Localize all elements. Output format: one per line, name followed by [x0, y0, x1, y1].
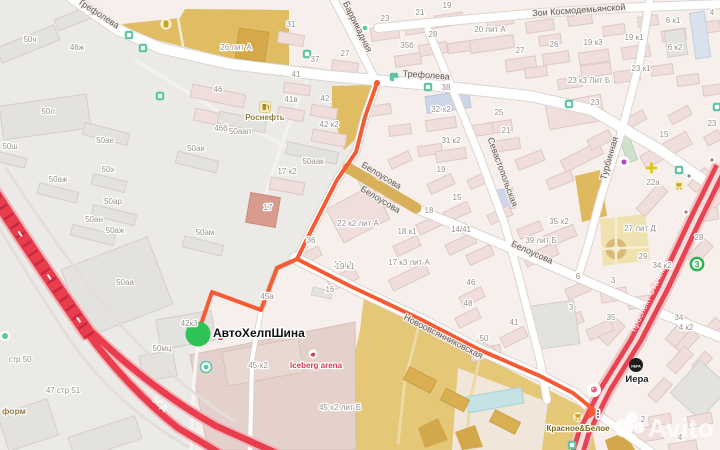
svg-text:25: 25: [495, 108, 504, 117]
svg-text:15: 15: [660, 130, 669, 139]
svg-text:17 к3 лит А: 17 к3 лит А: [388, 258, 430, 267]
svg-text:19 к1: 19 к1: [335, 262, 355, 271]
svg-text:45а: 45а: [260, 292, 274, 301]
svg-text:23: 23: [708, 119, 717, 128]
svg-text:50ан: 50ан: [85, 215, 103, 224]
svg-text:6 к2: 6 к2: [668, 43, 683, 52]
svg-text:32 х2: 32 х2: [431, 105, 451, 114]
svg-text:50аж: 50аж: [49, 175, 68, 184]
svg-text:31: 31: [287, 20, 296, 29]
svg-text:26: 26: [550, 40, 559, 49]
svg-text:22а: 22а: [646, 178, 660, 187]
svg-text:50ч: 50ч: [23, 35, 36, 44]
svg-text:42к3: 42к3: [181, 319, 198, 328]
svg-text:21: 21: [416, 8, 425, 17]
svg-text:41: 41: [292, 70, 301, 79]
svg-text:39 лит Б: 39 лит Б: [525, 236, 556, 245]
svg-text:2: 2: [641, 415, 646, 424]
svg-text:20 лит А: 20 лит А: [474, 25, 506, 34]
svg-text:22 к2 лит А: 22 к2 лит А: [337, 219, 379, 228]
svg-text:50ае: 50ае: [96, 136, 114, 145]
svg-text:16: 16: [326, 285, 335, 294]
svg-text:23: 23: [591, 98, 600, 107]
svg-text:Роснефть: Роснефть: [245, 113, 284, 122]
svg-text:50: 50: [480, 334, 489, 343]
svg-text:50аж: 50аж: [106, 226, 125, 235]
svg-text:АвтоХелпШина: АвтоХелпШина: [213, 326, 305, 340]
svg-text:34 к2: 34 к2: [652, 261, 672, 270]
svg-text:45 х2: 45 х2: [248, 361, 268, 370]
svg-text:Иера: Иера: [625, 374, 649, 385]
svg-text:19 к3: 19 к3: [583, 38, 603, 47]
svg-text:35 х2: 35 х2: [549, 217, 569, 226]
svg-text:35: 35: [607, 313, 616, 322]
svg-text:3: 3: [611, 276, 616, 285]
svg-text:18: 18: [425, 206, 434, 215]
svg-text:18 к1: 18 к1: [397, 227, 417, 236]
svg-text:3: 3: [569, 303, 574, 312]
svg-text:28: 28: [695, 233, 704, 242]
svg-text:41в: 41в: [284, 95, 297, 104]
svg-text:6: 6: [576, 272, 581, 281]
svg-text:Iceberg arena: Iceberg arena: [290, 361, 343, 370]
svg-text:23: 23: [381, 14, 390, 23]
svg-text:19: 19: [443, 1, 452, 10]
svg-text:29: 29: [639, 252, 648, 261]
svg-text:50х: 50х: [102, 165, 115, 174]
svg-text:50л: 50л: [41, 107, 55, 116]
svg-text:42: 42: [321, 94, 330, 103]
svg-text:48: 48: [464, 299, 473, 308]
svg-text:23 к3 Лит Б: 23 к3 Лит Б: [568, 76, 610, 85]
svg-text:3: 3: [694, 260, 699, 270]
svg-text:19 к1: 19 к1: [624, 33, 644, 42]
svg-text:27 лит Д: 27 лит Д: [624, 224, 656, 233]
svg-text:26 лит А: 26 лит А: [220, 43, 252, 52]
svg-text:46: 46: [467, 278, 476, 287]
svg-text:50ш: 50ш: [2, 142, 17, 151]
svg-text:4 к2: 4 к2: [679, 323, 694, 332]
svg-text:34: 34: [675, 313, 684, 322]
svg-text:41: 41: [510, 318, 519, 327]
svg-text:46: 46: [214, 85, 223, 94]
svg-text:50ар: 50ар: [104, 197, 122, 206]
svg-text:4: 4: [710, 8, 715, 17]
svg-text:31 к2: 31 к2: [441, 136, 461, 145]
svg-text:50аап: 50аап: [229, 127, 251, 136]
svg-text:Avito: Avito: [648, 413, 715, 443]
svg-text:50ам: 50ам: [196, 228, 215, 237]
svg-text:28: 28: [429, 30, 438, 39]
svg-text:6 к1: 6 к1: [666, 16, 681, 25]
svg-text:35б: 35б: [400, 41, 414, 50]
svg-text:37: 37: [311, 55, 320, 64]
svg-text:47 стр 51: 47 стр 51: [46, 386, 81, 395]
svg-text:38: 38: [442, 83, 451, 92]
svg-text:50аа: 50аа: [116, 278, 134, 287]
svg-text:50аак: 50аак: [302, 157, 324, 166]
svg-text:15: 15: [453, 193, 462, 202]
svg-text:27: 27: [516, 46, 525, 55]
svg-text:ИЕРА: ИЕРА: [631, 364, 641, 368]
svg-text:14/41: 14/41: [451, 225, 472, 234]
svg-text:27: 27: [341, 49, 350, 58]
svg-text:21: 21: [502, 126, 511, 135]
svg-text:46ж: 46ж: [70, 43, 85, 52]
svg-text:46б: 46б: [214, 124, 228, 133]
svg-text:17: 17: [264, 203, 273, 212]
svg-text:45 х2 лит Б: 45 х2 лит Б: [319, 403, 361, 412]
svg-text:19: 19: [437, 165, 446, 174]
svg-text:42 к2: 42 к2: [319, 120, 339, 129]
svg-text:36: 36: [307, 236, 316, 245]
svg-text:стр 50: стр 50: [8, 355, 32, 364]
svg-text:Красное&Белое: Красное&Белое: [546, 424, 610, 433]
svg-text:17 к2: 17 к2: [277, 167, 297, 176]
svg-text:50мц: 50мц: [153, 344, 172, 353]
svg-text:50аи: 50аи: [187, 144, 205, 153]
svg-text:23 к1: 23 к1: [631, 64, 651, 73]
svg-text:форм: форм: [2, 406, 26, 416]
